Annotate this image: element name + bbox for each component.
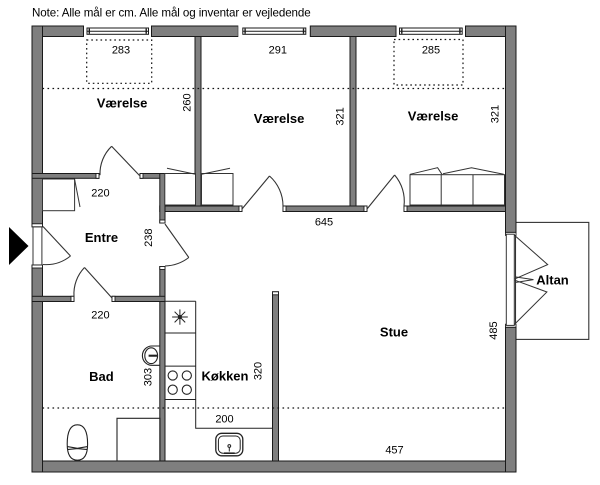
svg-text:Værelse: Værelse: [254, 111, 305, 126]
svg-text:Entre: Entre: [85, 230, 118, 245]
svg-text:Køkken: Køkken: [202, 369, 249, 384]
svg-text:220: 220: [91, 188, 109, 200]
svg-text:Note: Alle mål er cm. Alle mål: Note: Alle mål er cm. Alle mål og invent…: [32, 7, 311, 20]
svg-text:200: 200: [215, 414, 233, 426]
svg-text:283: 283: [112, 45, 130, 57]
svg-text:645: 645: [315, 217, 333, 229]
svg-text:Stue: Stue: [380, 325, 408, 340]
svg-text:320: 320: [253, 362, 265, 380]
svg-text:238: 238: [143, 229, 155, 247]
svg-text:321: 321: [335, 107, 347, 125]
svg-text:285: 285: [422, 45, 440, 57]
svg-text:291: 291: [269, 45, 287, 57]
svg-text:485: 485: [488, 321, 500, 339]
svg-text:Bad: Bad: [89, 369, 114, 384]
svg-text:Værelse: Værelse: [97, 96, 148, 111]
svg-text:Værelse: Værelse: [408, 109, 459, 124]
svg-text:457: 457: [385, 445, 403, 457]
svg-text:321: 321: [490, 105, 502, 123]
svg-text:303: 303: [143, 368, 155, 386]
svg-text:Altan: Altan: [536, 273, 569, 288]
svg-text:220: 220: [91, 310, 109, 322]
svg-text:260: 260: [182, 93, 194, 111]
